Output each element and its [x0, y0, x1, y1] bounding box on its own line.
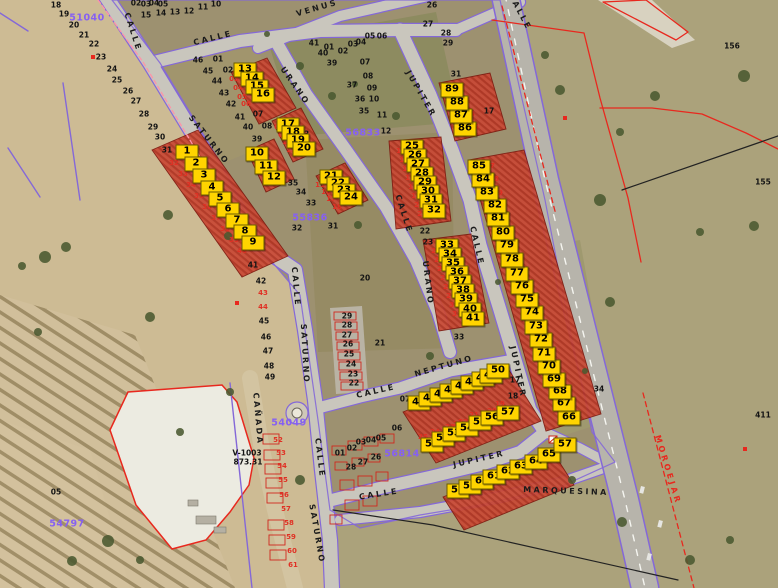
parcel-number: 45: [203, 67, 213, 76]
parcel-number: 11: [377, 111, 387, 120]
parcel-number-red: 58: [284, 519, 294, 527]
parcel-number: 12: [381, 127, 391, 136]
lot-marker-70[interactable]: 70: [538, 360, 561, 375]
zone-number: 54797: [49, 519, 85, 530]
parcel-number-red: 54: [277, 462, 287, 470]
parcel-number: 31: [451, 70, 461, 79]
street-label-calle: CALLE: [358, 486, 399, 501]
parcel-number: 35: [359, 107, 369, 116]
parcel-number: 156: [724, 42, 740, 51]
parcel-number: 05: [51, 488, 61, 497]
lot-marker-12[interactable]: 12: [263, 171, 286, 186]
parcel-number: 44: [212, 77, 222, 86]
parcel-number: 01: [335, 449, 345, 458]
parcel-number: 03: [356, 438, 366, 447]
lot-marker-84[interactable]: 84: [472, 173, 495, 188]
parcel-number: 02: [338, 47, 348, 56]
parcel-number: 09: [367, 84, 377, 93]
lot-marker-73[interactable]: 73: [525, 320, 548, 335]
parcel-number: 18: [508, 392, 518, 401]
parcel-number: V-1003: [232, 449, 261, 458]
parcel-number: 28: [342, 321, 352, 330]
parcel-number: 34: [296, 188, 306, 197]
parcel-number: 15: [141, 11, 151, 20]
lot-marker-80[interactable]: 80: [492, 226, 515, 241]
parcel-number: 05: [365, 32, 375, 41]
lot-marker-16[interactable]: 16: [252, 88, 275, 103]
zone-number: 56833: [345, 128, 381, 139]
parcel-number: 07: [253, 110, 263, 119]
parcel-number: 27: [131, 97, 141, 106]
lot-marker-69[interactable]: 69: [543, 373, 566, 388]
zone-number: 56814: [384, 449, 420, 460]
parcel-number: 06: [392, 424, 402, 433]
parcel-number: 26: [427, 1, 437, 10]
parcel-number: 34: [594, 385, 604, 394]
lot-marker-72[interactable]: 72: [530, 333, 553, 348]
lot-marker-76[interactable]: 76: [511, 280, 534, 295]
zone-number: 54049: [271, 418, 307, 429]
lot-marker-50[interactable]: 50: [487, 364, 510, 379]
parcel-number: 41: [235, 113, 245, 122]
parcel-number: 05: [376, 434, 386, 443]
parcel-number: 27: [358, 458, 368, 467]
street-label-venus: VENUS: [295, 0, 339, 18]
street-label-calle: CALLE: [192, 29, 233, 47]
street-label-urano: URANO: [421, 260, 435, 306]
map-annotations: CALLECALLEVENUSCALLESATURNOURANOJUPITERC…: [0, 0, 778, 588]
lot-marker-82[interactable]: 82: [484, 199, 507, 214]
parcel-number-red: 55: [278, 476, 288, 484]
lot-marker-57[interactable]: 57: [554, 438, 577, 453]
lot-marker-83[interactable]: 83: [476, 186, 499, 201]
lot-marker-32[interactable]: 32: [423, 204, 446, 219]
parcel-number: 26: [343, 340, 353, 349]
parcel-number: 37: [347, 81, 357, 90]
parcel-number: 01: [213, 55, 223, 64]
parcel-number: 26: [371, 453, 381, 462]
parcel-number: 21: [375, 339, 385, 348]
parcel-number: 26: [123, 87, 133, 96]
parcel-number: 31: [328, 222, 338, 231]
parcel-number: 42: [226, 100, 236, 109]
street-label-marquesina: MARQUESINA: [523, 485, 609, 497]
street-label-saturno: SATURNO: [299, 324, 311, 385]
lot-marker-86[interactable]: 86: [454, 122, 477, 137]
parcel-number: 24: [346, 360, 356, 369]
parcel-number-red: 43: [258, 289, 268, 297]
parcel-number-red: 56: [279, 491, 289, 499]
parcel-number: 411: [755, 411, 771, 420]
parcel-number: 28: [346, 463, 356, 472]
parcel-number: 21: [79, 31, 89, 40]
parcel-number: 39: [252, 135, 262, 144]
lot-marker-77[interactable]: 77: [506, 267, 529, 282]
parcel-number: 33: [454, 333, 464, 342]
parcel-number-red: 32: [169, 159, 179, 167]
parcel-number: 29: [443, 39, 453, 48]
parcel-number: 45: [259, 317, 269, 326]
street-label-jupiter: JUPITER: [404, 69, 438, 119]
parcel-number-red: 61: [288, 561, 298, 569]
parcel-number: 873.31: [234, 458, 263, 467]
street-label-calle: CALLE: [468, 225, 486, 266]
parcel-number: 29: [342, 312, 352, 321]
parcel-number: 28: [139, 110, 149, 119]
lot-marker-87[interactable]: 87: [450, 109, 473, 124]
parcel-number-red: 52: [273, 436, 283, 444]
lot-marker-75[interactable]: 75: [516, 293, 539, 308]
parcel-number: 46: [261, 333, 271, 342]
parcel-number: 20: [69, 21, 79, 30]
parcel-number: 49: [265, 373, 275, 382]
parcel-number: 41: [248, 261, 258, 270]
lot-marker-79[interactable]: 79: [496, 239, 519, 254]
parcel-number: 40: [243, 123, 253, 132]
parcel-number: 22: [89, 40, 99, 49]
parcel-number: 12: [184, 7, 194, 16]
parcel-number: 20: [360, 274, 370, 283]
parcel-number: 23: [96, 53, 106, 62]
parcel-number: 04: [366, 436, 376, 445]
parcel-number: 14: [156, 9, 166, 18]
lot-marker-81[interactable]: 81: [487, 212, 510, 227]
parcel-number: 36: [355, 95, 365, 104]
parcel-number: 13: [170, 8, 180, 17]
parcel-number: 11: [198, 3, 208, 12]
parcel-number: 32: [292, 224, 302, 233]
parcel-number: 25: [112, 76, 122, 85]
parcel-number: 33: [306, 199, 316, 208]
street-label-calle: CALLE: [313, 437, 327, 478]
lot-marker-85[interactable]: 85: [468, 160, 491, 175]
parcel-number: 27: [342, 331, 352, 340]
parcel-number: 06: [377, 32, 387, 41]
street-label-urano: URANO: [278, 65, 311, 107]
street-label-calle: CALLE: [355, 382, 396, 400]
parcel-number: 155: [755, 178, 771, 187]
zone-number: 55836: [292, 213, 328, 224]
lot-marker-71[interactable]: 71: [533, 347, 556, 362]
parcel-number: 40: [318, 49, 328, 58]
parcel-number: 29: [148, 123, 158, 132]
parcel-number: 08: [363, 72, 373, 81]
parcel-number: 30: [155, 133, 165, 142]
lot-marker-9[interactable]: 9: [242, 236, 265, 251]
parcel-number: 35: [288, 179, 298, 188]
cadastral-aerial-map: CALLECALLEVENUSCALLESATURNOURANOJUPITERC…: [0, 0, 778, 588]
street-label-saturno: SATURNO: [307, 503, 326, 564]
road-label-red: MOROEJAR: [653, 434, 683, 506]
lot-marker-20[interactable]: 20: [293, 142, 316, 157]
parcel-number: 17: [510, 376, 520, 385]
lot-marker-24[interactable]: 24: [340, 191, 363, 206]
parcel-number: 31: [162, 146, 172, 155]
parcel-number: 23: [423, 238, 433, 247]
parcel-number: 48: [264, 362, 274, 371]
lot-marker-89[interactable]: 89: [441, 83, 464, 98]
parcel-number: 22: [349, 379, 359, 388]
lot-marker-74[interactable]: 74: [521, 306, 544, 321]
lot-marker-41[interactable]: 41: [462, 312, 485, 327]
parcel-number: 39: [327, 59, 337, 68]
parcel-number: 02: [223, 66, 233, 75]
lot-marker-66[interactable]: 66: [558, 411, 581, 426]
parcel-number: 27: [423, 20, 433, 29]
parcel-number: 42: [256, 277, 266, 286]
street-label-caada: CAÑADA: [251, 392, 265, 445]
parcel-number-red: 06: [241, 100, 251, 108]
parcel-number: 19: [59, 10, 69, 19]
parcel-number-red: 59: [286, 533, 296, 541]
parcel-number: 41: [309, 39, 319, 48]
parcel-number: 02: [131, 0, 141, 8]
parcel-number-red: 44: [258, 303, 268, 311]
parcel-number: 28: [441, 29, 451, 38]
parcel-number: 46: [193, 56, 203, 65]
parcel-number: 22: [420, 227, 430, 236]
lot-marker-78[interactable]: 78: [501, 253, 524, 268]
parcel-number: 10: [211, 0, 221, 9]
parcel-number: 07: [360, 58, 370, 67]
parcel-number: 23: [348, 370, 358, 379]
parcel-number: 25: [344, 350, 354, 359]
parcel-number: 05: [158, 0, 168, 9]
parcel-number: 43: [219, 89, 229, 98]
parcel-number: 08: [262, 122, 272, 131]
parcel-number-red: 57: [281, 505, 291, 513]
lot-marker-57[interactable]: 57: [497, 406, 520, 421]
parcel-number: 24: [107, 65, 117, 74]
lot-marker-88[interactable]: 88: [446, 96, 469, 111]
parcel-number: 10: [369, 95, 379, 104]
street-label-calle: CALLE: [507, 0, 534, 32]
parcel-number: 47: [263, 347, 273, 356]
street-label-calle: CALLE: [290, 267, 302, 308]
parcel-number-red: 53: [276, 449, 286, 457]
parcel-number: 18: [51, 1, 61, 10]
parcel-number-red: 60: [287, 547, 297, 555]
parcel-number: 17: [484, 107, 494, 116]
